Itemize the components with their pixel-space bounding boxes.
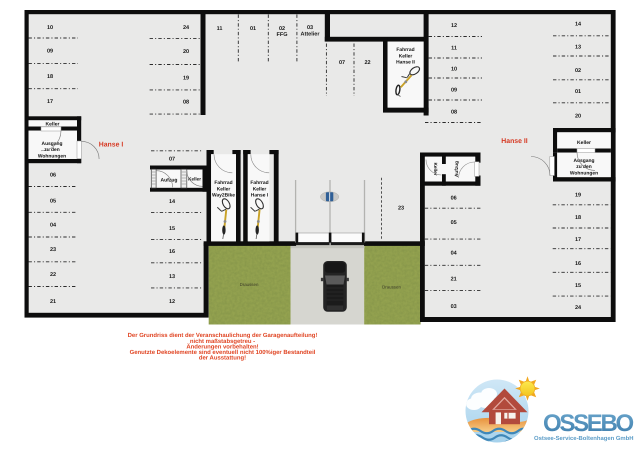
svg-text:03: 03 [451,304,457,310]
svg-text:der Ausstattung!: der Ausstattung! [199,355,246,362]
svg-text:09: 09 [47,48,53,54]
svg-text:Wohnungen: Wohnungen [570,170,598,176]
svg-text:Aufzug: Aufzug [454,161,459,177]
svg-text:12: 12 [451,23,457,29]
svg-text:23: 23 [398,205,404,211]
svg-text:18: 18 [575,215,581,221]
svg-text:05: 05 [451,220,457,226]
svg-text:20: 20 [575,114,581,120]
svg-text:17: 17 [47,99,53,105]
svg-text:07: 07 [339,60,345,66]
svg-text:16: 16 [169,249,175,255]
svg-text:Keller: Keller [46,121,60,127]
svg-text:Keller: Keller [577,140,591,146]
svg-text:01: 01 [250,26,256,32]
svg-text:18: 18 [47,74,53,80]
svg-text:Keller: Keller [399,53,413,59]
svg-text:05: 05 [50,198,56,204]
svg-text:04: 04 [451,251,458,257]
svg-text:12: 12 [169,299,175,305]
svg-text:03: 03 [307,25,313,31]
svg-text:21: 21 [451,277,457,283]
svg-text:23: 23 [50,247,56,253]
svg-text:Keller: Keller [217,186,231,192]
svg-text:04: 04 [50,223,57,229]
svg-text:Draussen: Draussen [382,284,401,289]
svg-text:Keller: Keller [253,186,267,192]
svg-text:01: 01 [575,89,581,95]
svg-text:21: 21 [50,299,56,305]
svg-text:24: 24 [575,305,582,311]
svg-text:24: 24 [183,25,190,31]
svg-text:Ostsee-Service-Boltenhagen Gmb: Ostsee-Service-Boltenhagen GmbH [534,435,634,442]
svg-text:Ausgang: Ausgang [574,158,595,164]
svg-text:OSSEBO: OSSEBO [543,410,634,437]
svg-text:19: 19 [575,192,581,198]
svg-text:Aufzug: Aufzug [161,178,178,184]
svg-text:Hanse I: Hanse I [251,193,269,199]
svg-text:13: 13 [169,274,175,280]
svg-text:08: 08 [451,109,457,115]
svg-text:17: 17 [575,237,581,243]
svg-text:Hanse II: Hanse II [396,60,415,66]
svg-text:06: 06 [50,173,56,179]
svg-text:16: 16 [575,261,581,267]
svg-text:08: 08 [183,100,189,106]
svg-text:14: 14 [575,21,582,27]
svg-text:Keller: Keller [188,177,201,182]
svg-text:Attelier: Attelier [301,31,321,37]
svg-text:Draussen: Draussen [240,282,259,287]
svg-text:02: 02 [575,68,581,74]
svg-text:15: 15 [169,226,175,232]
svg-text:11: 11 [217,26,223,32]
svg-text:FFG: FFG [277,32,288,38]
svg-text:15: 15 [575,283,581,289]
svg-text:10: 10 [451,67,457,73]
svg-text:22: 22 [364,60,370,66]
svg-text:Way2Bike: Way2Bike [212,193,235,199]
svg-text:Hanse I: Hanse I [99,142,124,149]
svg-text:Fahrrad: Fahrrad [396,47,414,53]
svg-text:07: 07 [169,156,175,162]
svg-text:11: 11 [451,46,457,52]
svg-text:13: 13 [575,44,581,50]
svg-text:10: 10 [47,25,53,31]
svg-text:09: 09 [451,87,457,93]
svg-text:22: 22 [50,272,56,278]
svg-text:20: 20 [183,49,189,55]
svg-text:14: 14 [169,199,176,205]
svg-text:Fahrrad: Fahrrad [250,180,268,186]
svg-text:Ausgang: Ausgang [42,141,63,147]
svg-text:06: 06 [451,195,457,201]
svg-text:Fahrrad: Fahrrad [214,180,232,186]
svg-text:Hanse II: Hanse II [501,138,528,145]
svg-text:Wohnungen: Wohnungen [38,153,66,159]
svg-text:19: 19 [183,75,189,81]
